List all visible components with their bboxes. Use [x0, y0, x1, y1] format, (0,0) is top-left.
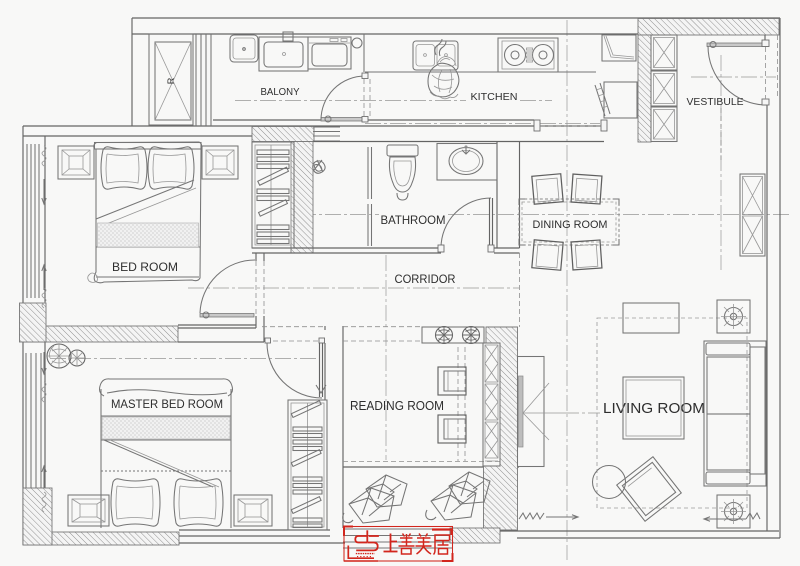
svg-text:BALONY: BALONY [261, 86, 300, 98]
svg-text:R: R [166, 77, 176, 84]
svg-text:BED ROOM: BED ROOM [112, 260, 178, 274]
svg-text:MASTER BED ROOM: MASTER BED ROOM [111, 397, 223, 411]
svg-text:READING ROOM: READING ROOM [350, 399, 444, 413]
svg-text:KITCHEN: KITCHEN [471, 91, 518, 103]
svg-text:LIVING ROOM: LIVING ROOM [603, 401, 705, 417]
svg-text:DINING ROOM: DINING ROOM [533, 219, 608, 231]
svg-text:BATHROOM: BATHROOM [381, 213, 446, 227]
svg-text:VESTIBULE: VESTIBULE [687, 97, 744, 108]
svg-text:CORRIDOR: CORRIDOR [395, 272, 456, 286]
